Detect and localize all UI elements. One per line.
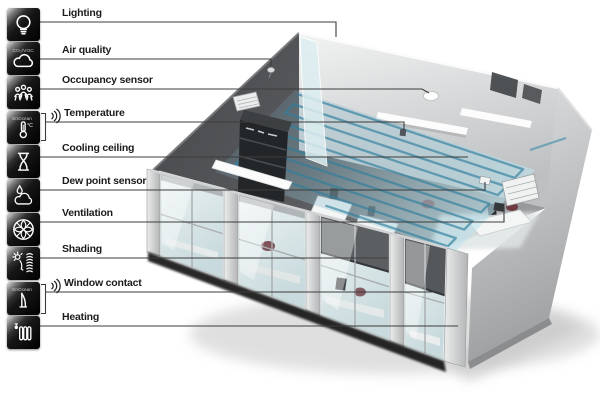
wall-temperature-sensor [400, 129, 407, 137]
connector-lighting [40, 22, 336, 37]
legend-label-shading: Shading [62, 243, 102, 255]
radiator-icon [10, 319, 37, 346]
icon-caption: CO₂/VOC [12, 48, 34, 54]
air-quality-icon-tile: CO₂/VOC [7, 42, 40, 75]
occupancy-sensor [424, 91, 439, 100]
people-icon [10, 79, 37, 106]
icon-caption: EnOcean [12, 116, 32, 122]
legend-label-heating: Heating [62, 311, 99, 323]
legend-label-ventilation: Ventilation [62, 207, 113, 219]
connector-air-quality [40, 59, 271, 66]
hourglass-icon [10, 148, 37, 175]
window-contact-icon-tile: EnOcean [7, 282, 40, 315]
legend-label-temperature: Temperature [64, 107, 125, 119]
wireless-signal-icon [49, 277, 61, 295]
corner-post [444, 248, 468, 367]
occupancy-icon-tile [7, 76, 40, 109]
icon-caption: EnOcean [12, 287, 32, 293]
cooling-ceiling-icon-tile [7, 145, 40, 178]
thermometer-icon: EnOcean °C [10, 114, 37, 141]
legend-label-occupancy: Occupancy sensor [62, 74, 153, 86]
legend-label-cooling-ceiling: Cooling ceiling [62, 142, 134, 154]
wireless-signal-icon [49, 107, 61, 125]
droplet-cloud-icon [10, 182, 37, 209]
temperature-icon-tile: EnOcean °C [7, 111, 40, 144]
infographic-canvas: CO₂/VOC EnOcean °C [0, 0, 600, 400]
icon-unit: °C [27, 123, 33, 129]
lighting-icon-tile [7, 8, 40, 41]
window-ajar-icon: EnOcean [10, 285, 37, 312]
cloud-icon: CO₂/VOC [10, 45, 37, 72]
legend-label-air-quality: Air quality [62, 44, 111, 56]
sun-blind-icon [10, 250, 37, 277]
legend-label-window-contact: Window contact [64, 277, 142, 289]
shading-icon-tile [7, 247, 40, 280]
legend-label-lighting: Lighting [62, 7, 102, 19]
fan-icon [10, 216, 37, 243]
dew-point-icon-tile [7, 179, 40, 212]
light-bulb-icon [10, 11, 37, 38]
heating-icon-tile [7, 316, 40, 349]
legend-label-dew-point: Dew point sensor [62, 175, 146, 187]
ventilation-icon-tile [7, 213, 40, 246]
room-illustration [0, 0, 600, 400]
